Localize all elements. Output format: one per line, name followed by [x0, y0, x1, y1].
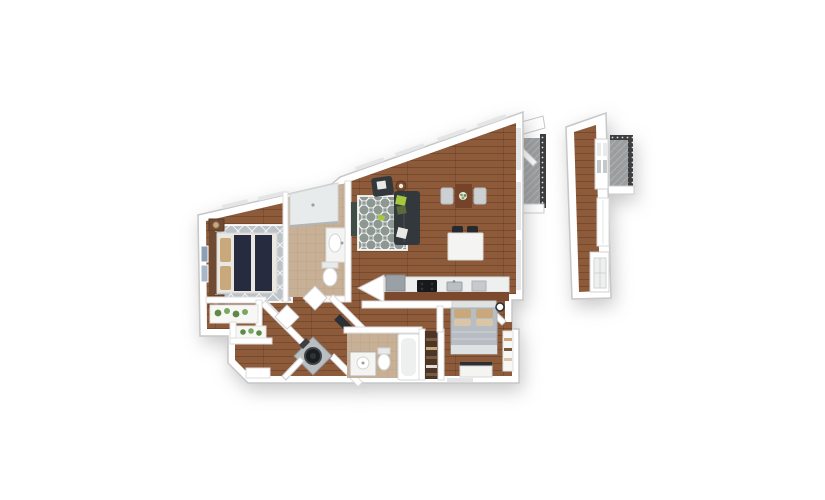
tv-panel: [351, 202, 357, 236]
bedroom1-duvet-panel: [234, 235, 251, 291]
wall-art: [201, 246, 208, 262]
centerpiece-plant: [462, 197, 465, 200]
drain: [362, 362, 365, 365]
sofa-pillow-dark-green: [396, 205, 406, 214]
bedroom1-pillow: [220, 238, 231, 262]
balcony-railing-right: [540, 134, 546, 208]
detached-segment: [566, 113, 634, 299]
toilet-tank: [378, 348, 390, 354]
toilet: [323, 268, 337, 286]
bathroom2-top-wall: [344, 327, 422, 333]
kitchen-sink: [447, 282, 462, 291]
plant: [242, 309, 248, 315]
toilet-tank: [322, 262, 338, 268]
cooktop: [417, 280, 437, 292]
centerpiece-plant: [464, 194, 467, 197]
bedroom1-pillow: [220, 266, 231, 290]
shelf: [426, 338, 437, 341]
bed-end-blanket: [451, 345, 497, 354]
window-slot: [516, 182, 521, 230]
bedroom1-duvet-panel: [255, 235, 272, 291]
shelf: [426, 347, 437, 350]
window-slot: [516, 240, 521, 290]
segment-window-bay: [590, 252, 609, 292]
faucet: [341, 242, 344, 245]
dresser-top: [460, 362, 492, 366]
bedroom2-pillow: [454, 319, 471, 326]
bathtub-basin: [401, 338, 416, 376]
armchair-pillow: [376, 180, 386, 189]
dining-area: [441, 184, 486, 208]
segment-balcony-railing-right: [628, 136, 633, 192]
bathroom1-left-wall: [283, 192, 288, 302]
bedroom2-pillow: [476, 309, 493, 318]
bedroom2-left-wall: [437, 306, 443, 332]
window-pane: [603, 160, 607, 173]
segment-balcony-sill: [607, 186, 634, 194]
dining-chair: [441, 188, 453, 204]
plant: [215, 310, 222, 317]
shelf: [426, 356, 437, 359]
burner: [421, 288, 424, 291]
bedroom2-pillow: [454, 309, 471, 318]
segment-balcony-floor: [610, 139, 630, 187]
faucet: [453, 280, 456, 283]
balcony-floor: [521, 138, 542, 206]
washer-door-glass: [310, 353, 316, 359]
burner: [431, 288, 434, 291]
closet-item: [504, 358, 512, 361]
bathroom-1: [283, 181, 357, 302]
dining-chair: [474, 188, 486, 204]
plant: [233, 311, 240, 318]
kitchen-island: [448, 233, 483, 260]
bathroom1-sink: [329, 234, 341, 252]
closet-wall: [230, 338, 272, 344]
toilet: [378, 354, 390, 370]
plant: [256, 330, 262, 336]
plant: [248, 328, 254, 334]
segment-balcony-railing-top: [610, 135, 633, 140]
window-pane: [603, 143, 607, 156]
floorplan-render: [0, 0, 825, 500]
wall-clock: [496, 303, 504, 311]
window-slot: [447, 378, 473, 382]
bathroom2-right-wall: [419, 329, 425, 380]
window-slot: [516, 128, 521, 170]
dresser: [460, 366, 492, 377]
side-table-tray: [399, 184, 403, 188]
bedroom1-headboard: [209, 232, 217, 294]
closet-item: [504, 348, 512, 351]
shelf: [426, 373, 437, 376]
bathroom1-right-wall: [345, 181, 351, 302]
shelf: [426, 365, 437, 368]
main-unit: [198, 112, 523, 386]
window-pane: [597, 160, 601, 173]
centerpiece-plant: [460, 194, 463, 197]
refrigerator: [386, 275, 405, 291]
table-lamp: [213, 222, 219, 228]
bedroom2-headboard: [452, 301, 496, 308]
kitchen-counter-front: [382, 292, 509, 301]
shower-drain: [311, 203, 314, 206]
console-shelf: [246, 368, 270, 378]
wall-art: [201, 265, 208, 282]
bathroom-2: [344, 327, 425, 380]
plant: [224, 308, 230, 314]
segment-window-grid: [595, 139, 608, 189]
closet-wall: [438, 329, 444, 380]
window-pane: [597, 143, 601, 156]
bedroom2-pillow: [476, 319, 493, 326]
dishwasher: [472, 281, 486, 291]
plant: [240, 329, 246, 335]
burner: [431, 283, 434, 286]
burner: [421, 283, 424, 286]
closet-item: [504, 338, 512, 341]
floorplan-canvas: [0, 0, 825, 500]
